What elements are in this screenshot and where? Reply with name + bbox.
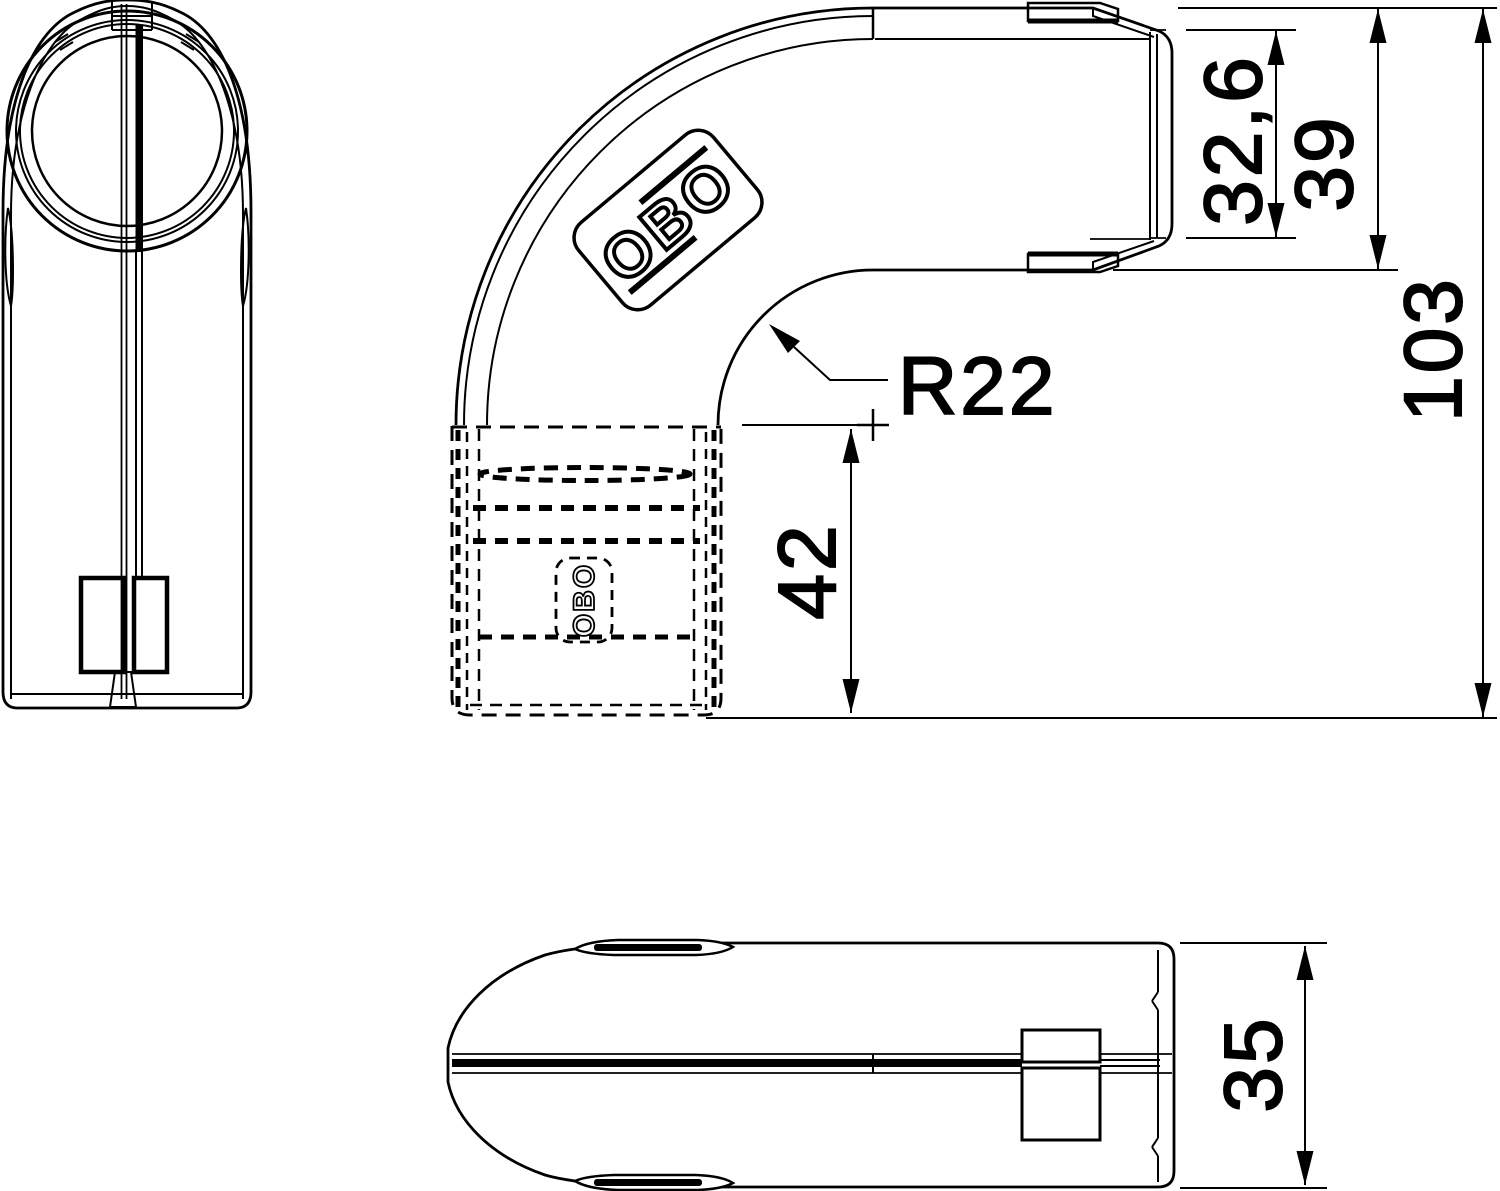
plan-view-bottom-slot xyxy=(575,1175,733,1190)
plan-view-clip xyxy=(1022,1030,1100,1140)
plan-view-seam xyxy=(452,1059,1022,1067)
plan-view-top-slot xyxy=(575,940,733,955)
dim-socket-opening-label: 32,6 xyxy=(1188,54,1279,226)
dim-overall-height-label: 103 xyxy=(1388,276,1479,422)
dim-socket-opening: 32,6 xyxy=(1188,31,1285,237)
dim-end-height-label: 39 xyxy=(1279,114,1370,211)
technical-drawing-canvas: OBO OBO xyxy=(0,0,1500,1191)
obo-logo-text-small: OBO xyxy=(568,563,601,637)
dim-width-label: 35 xyxy=(1208,1015,1299,1112)
dim-socket-length-label: 42 xyxy=(762,522,853,619)
obo-bend-drawing: OBO OBO xyxy=(0,0,1500,1191)
dim-bend-radius-label: R22 xyxy=(898,341,1057,432)
